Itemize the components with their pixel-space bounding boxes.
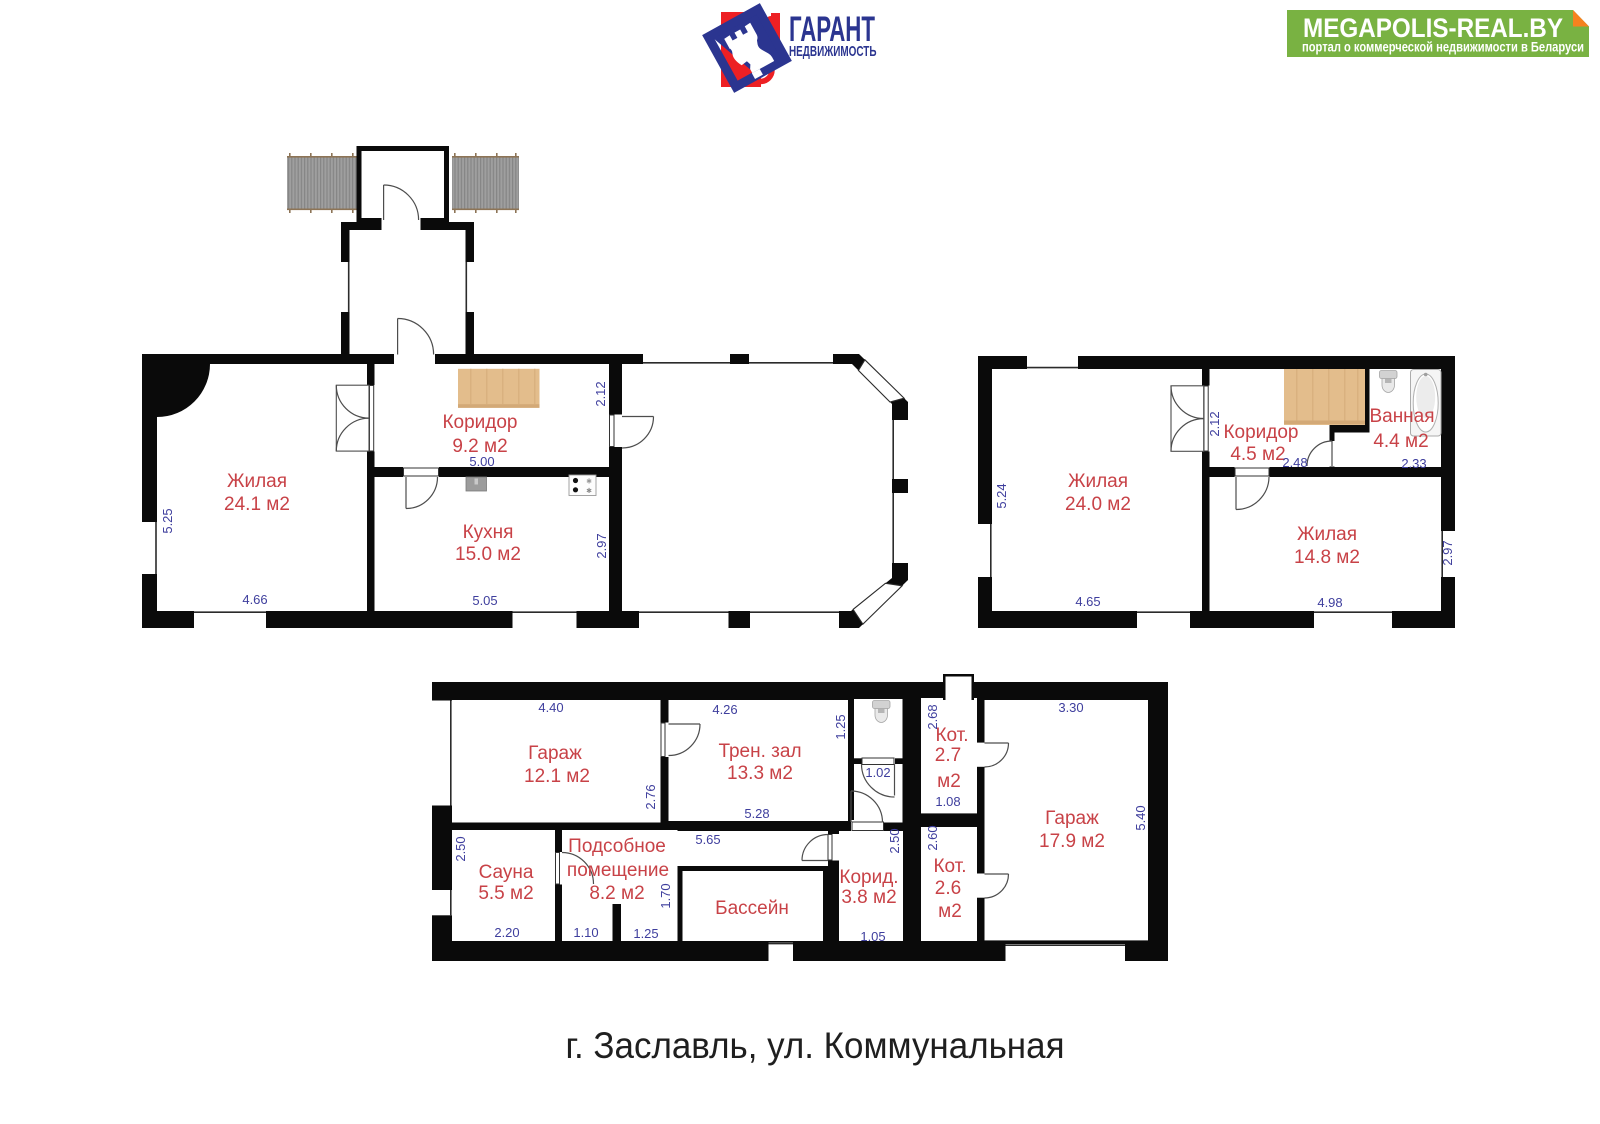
svg-text:3.30: 3.30 [1058, 700, 1083, 715]
svg-text:5.65: 5.65 [695, 832, 720, 847]
svg-text:5.00: 5.00 [469, 454, 494, 469]
svg-text:✱: ✱ [586, 478, 592, 486]
svg-text:Бассейн: Бассейн [715, 898, 789, 919]
svg-text:Корид.: Корид. [839, 867, 898, 888]
svg-text:15.0 м2: 15.0 м2 [455, 544, 521, 565]
svg-text:5.24: 5.24 [994, 483, 1009, 508]
svg-text:Коридор: Коридор [1223, 422, 1298, 443]
svg-text:2.20: 2.20 [494, 925, 519, 940]
svg-text:Кухня: Кухня [463, 522, 514, 543]
svg-text:Жилая: Жилая [227, 471, 287, 492]
svg-text:5.25: 5.25 [160, 508, 175, 533]
svg-text:м2: м2 [938, 901, 962, 922]
svg-text:4.26: 4.26 [712, 702, 737, 717]
svg-text:12.1 м2: 12.1 м2 [524, 766, 590, 787]
svg-text:2.48: 2.48 [1282, 455, 1307, 470]
svg-text:Трен. зал: Трен. зал [718, 741, 801, 762]
svg-text:портал о коммерческой недвижим: портал о коммерческой недвижимости в Бел… [1302, 40, 1584, 55]
svg-text:2.97: 2.97 [1440, 540, 1455, 565]
svg-text:1.08: 1.08 [935, 794, 960, 809]
svg-text:2.12: 2.12 [1207, 411, 1222, 436]
svg-text:4.65: 4.65 [1075, 594, 1100, 609]
svg-text:4.4 м2: 4.4 м2 [1373, 431, 1428, 452]
svg-text:MEGAPOLIS-REAL.BY: MEGAPOLIS-REAL.BY [1303, 13, 1563, 43]
svg-text:5.28: 5.28 [744, 806, 769, 821]
svg-text:2.97: 2.97 [594, 533, 609, 558]
svg-text:2.60: 2.60 [925, 825, 940, 850]
svg-text:Коридор: Коридор [442, 412, 517, 433]
svg-text:4.40: 4.40 [538, 700, 563, 715]
svg-text:Сауна: Сауна [479, 862, 534, 883]
svg-text:1.02: 1.02 [865, 765, 890, 780]
svg-text:г. Заславль, ул. Коммунальная: г. Заславль, ул. Коммунальная [566, 1025, 1065, 1066]
svg-text:1.25: 1.25 [833, 714, 848, 739]
svg-text:Жилая: Жилая [1297, 524, 1357, 545]
svg-text:✱: ✱ [586, 487, 592, 495]
svg-text:НЕДВИЖИМОСТЬ: НЕДВИЖИМОСТЬ [789, 43, 877, 60]
svg-text:5.40: 5.40 [1133, 805, 1148, 830]
svg-text:13.3 м2: 13.3 м2 [727, 763, 793, 784]
svg-text:2.6: 2.6 [935, 878, 961, 899]
svg-text:1.25: 1.25 [633, 926, 658, 941]
svg-text:Кот.: Кот. [935, 725, 968, 746]
svg-text:4.5 м2: 4.5 м2 [1230, 444, 1285, 465]
svg-text:м2: м2 [937, 771, 961, 792]
svg-text:помещение: помещение [567, 860, 669, 881]
svg-text:5.05: 5.05 [472, 593, 497, 608]
svg-text:2.76: 2.76 [643, 784, 658, 809]
svg-text:4.66: 4.66 [242, 592, 267, 607]
svg-text:17.9 м2: 17.9 м2 [1039, 831, 1105, 852]
svg-text:Гараж: Гараж [528, 743, 582, 764]
svg-text:24.0 м2: 24.0 м2 [1065, 494, 1131, 515]
svg-text:Кот.: Кот. [933, 856, 966, 877]
svg-text:1.70: 1.70 [658, 883, 673, 908]
svg-text:Гараж: Гараж [1045, 808, 1099, 829]
svg-text:2.7: 2.7 [935, 745, 961, 766]
svg-text:1.10: 1.10 [573, 925, 598, 940]
svg-text:24.1 м2: 24.1 м2 [224, 494, 290, 515]
svg-text:1.05: 1.05 [860, 929, 885, 944]
svg-text:Ванная: Ванная [1369, 406, 1434, 427]
svg-text:2.68: 2.68 [925, 704, 940, 729]
svg-text:14.8 м2: 14.8 м2 [1294, 547, 1360, 568]
svg-text:Жилая: Жилая [1068, 471, 1128, 492]
svg-text:2.12: 2.12 [593, 381, 608, 406]
svg-text:5.5 м2: 5.5 м2 [478, 883, 533, 904]
svg-text:2.33: 2.33 [1401, 456, 1426, 471]
svg-text:3.8 м2: 3.8 м2 [841, 887, 896, 908]
svg-text:Подсобное: Подсобное [568, 836, 666, 857]
svg-text:8.2 м2: 8.2 м2 [589, 883, 644, 904]
svg-text:4.98: 4.98 [1317, 595, 1342, 610]
svg-text:2.50: 2.50 [453, 836, 468, 861]
svg-text:2.50: 2.50 [887, 828, 902, 853]
